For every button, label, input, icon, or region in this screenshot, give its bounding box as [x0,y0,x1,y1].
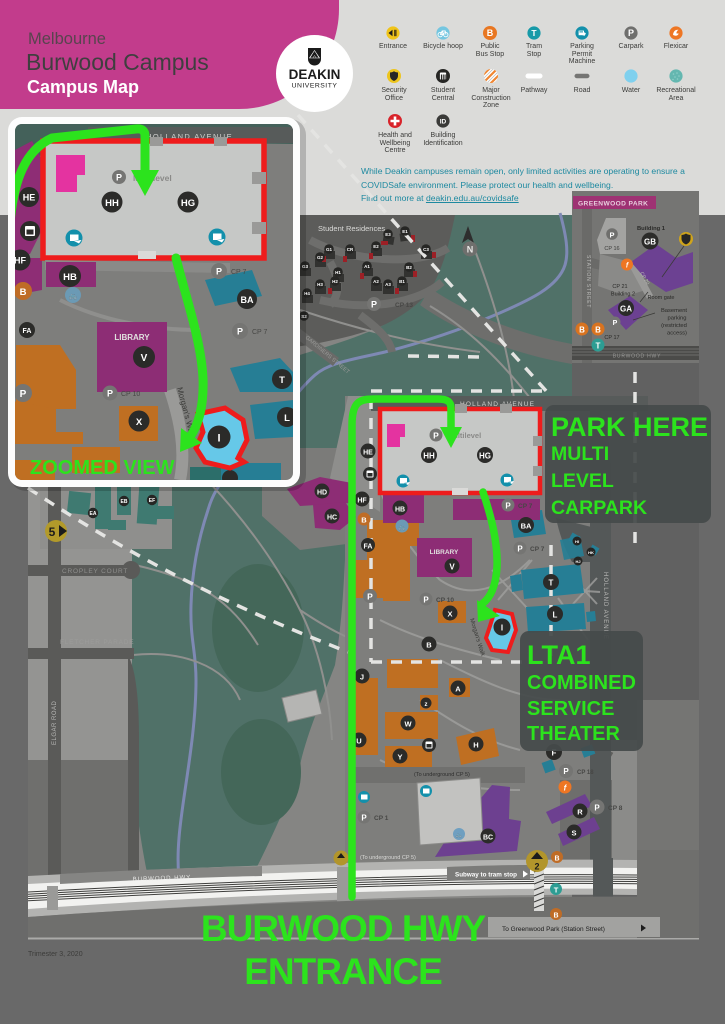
svg-text:H: H [473,741,478,750]
svg-text:HC: HC [327,515,337,522]
svg-text:P: P [237,327,243,337]
svg-text:P: P [371,300,377,310]
svg-text:ZOOMED VIEW: ZOOMED VIEW [30,457,175,479]
svg-text:HE: HE [23,193,36,203]
svg-text:BA: BA [241,295,254,305]
svg-text:SERVICE: SERVICE [527,698,614,720]
svg-text:W: W [404,720,412,729]
svg-text:access): access) [667,331,687,337]
svg-text:CR: CR [347,247,354,252]
svg-text:N: N [467,245,474,255]
svg-text:C3: C3 [423,247,429,252]
svg-text:CP 18: CP 18 [577,770,594,776]
svg-text:P: P [505,502,511,511]
svg-text:H3: H3 [317,282,323,287]
svg-text:HD: HD [317,490,327,497]
svg-text:P: P [20,389,27,400]
svg-text:L: L [553,611,558,620]
svg-text:CP 10: CP 10 [121,391,140,398]
svg-text:FLETCHER PARADE: FLETCHER PARADE [60,639,134,646]
svg-text:CP 7: CP 7 [231,269,247,276]
svg-text:P: P [433,431,439,441]
svg-text:E1: E1 [402,229,408,234]
svg-text:LIBRARY: LIBRARY [114,333,150,342]
svg-text:2: 2 [534,862,539,872]
svg-text:BA: BA [521,522,532,531]
svg-text:P: P [423,596,429,605]
svg-text:Student Residences: Student Residences [318,224,385,233]
svg-text:(restricted: (restricted [661,323,687,329]
svg-text:L: L [284,413,290,424]
svg-text:T: T [549,579,554,588]
svg-text:P: P [361,814,367,823]
svg-text:FA: FA [23,328,32,335]
svg-text:P: P [594,804,600,813]
svg-text:COMBINED: COMBINED [527,672,636,694]
svg-text:HE: HE [363,450,373,457]
svg-text:J: J [360,673,364,682]
svg-text:LEVEL: LEVEL [551,470,614,492]
svg-text:CP 7: CP 7 [530,546,545,553]
svg-text:T: T [596,342,601,351]
svg-text:BC: BC [483,835,493,842]
svg-text:A: A [455,685,461,694]
svg-text:P: P [367,592,373,602]
svg-text:MULTI: MULTI [551,443,609,465]
svg-text:HJ: HJ [575,559,580,564]
svg-text:parking: parking [667,316,686,322]
svg-text:BURWOOD HWY: BURWOOD HWY [613,354,661,360]
svg-text:I: I [217,433,220,445]
svg-text:V: V [449,563,455,572]
svg-text:HH: HH [105,198,119,209]
svg-text:HG: HG [181,198,195,209]
svg-text:S: S [571,829,576,838]
svg-text:FA: FA [364,544,373,551]
svg-text:R: R [577,808,583,817]
svg-text:B: B [20,287,27,298]
svg-text:(To underground CP 5): (To underground CP 5) [360,855,416,861]
svg-text:B2: B2 [406,265,412,270]
svg-text:CARPARK: CARPARK [551,497,647,519]
svg-text:T: T [554,886,559,895]
svg-text:B: B [361,516,367,525]
svg-text:CP 16: CP 16 [604,246,619,252]
svg-text:🚲: 🚲 [69,293,78,300]
svg-text:PARK HERE: PARK HERE [551,412,708,442]
svg-text:T: T [279,375,285,386]
svg-text:A3: A3 [385,282,391,287]
svg-text:P: P [563,767,569,776]
svg-text:STATION STREET: STATION STREET [585,255,591,308]
svg-text:CP 1: CP 1 [374,815,389,822]
svg-text:X: X [136,417,143,428]
svg-text:CP 7: CP 7 [252,329,268,336]
svg-text:E2: E2 [373,244,379,249]
svg-text:Y: Y [397,753,402,762]
svg-text:A1: A1 [364,264,370,269]
svg-text:ELGAR ROAD: ELGAR ROAD [52,700,58,745]
svg-text:HB: HB [395,507,405,514]
svg-text:z: z [425,702,428,708]
svg-text:LTA1: LTA1 [527,640,591,670]
svg-text:P: P [107,389,113,399]
svg-text:5: 5 [49,525,56,539]
svg-text:CP 13: CP 13 [395,302,413,309]
svg-text:P: P [216,267,222,277]
svg-text:CP 17: CP 17 [604,335,619,341]
svg-text:Subway to tram stop: Subway to tram stop [455,872,517,879]
svg-text:(To underground CP 5): (To underground CP 5) [414,772,470,778]
svg-text:H1: H1 [335,270,341,275]
svg-text:P: P [517,545,523,554]
svg-text:HI: HI [575,539,579,544]
svg-text:THEATER: THEATER [527,723,621,745]
svg-text:U: U [356,737,361,746]
svg-text:B: B [554,856,559,863]
svg-text:X: X [447,610,452,619]
svg-text:G2: G2 [317,255,324,260]
svg-text:ENTRANCE: ENTRANCE [244,951,442,992]
svg-text:GREENWOOD PARK: GREENWOOD PARK [578,201,648,208]
svg-text:B: B [595,326,601,335]
svg-text:A2: A2 [373,279,379,284]
svg-text:HG: HG [479,452,491,461]
svg-text:V: V [141,353,148,364]
svg-text:LIBRARY: LIBRARY [430,549,459,556]
svg-text:EB: EB [121,499,128,505]
svg-text:HB: HB [63,272,77,283]
svg-text:Building 1: Building 1 [637,226,666,232]
svg-text:B: B [426,641,432,650]
svg-text:H2: H2 [332,279,338,284]
svg-text:CROPLEY COURT: CROPLEY COURT [62,568,128,575]
svg-text:I: I [501,624,503,633]
svg-text:GA: GA [620,305,632,314]
svg-text:GB: GB [644,238,656,247]
svg-text:HF: HF [14,256,26,266]
svg-text:Building 2: Building 2 [611,292,635,298]
svg-text:B: B [553,913,558,920]
svg-text:CP 10: CP 10 [436,597,454,604]
svg-text:EF: EF [149,498,155,504]
svg-text:BURWOOD HWY: BURWOOD HWY [201,908,487,949]
svg-text:P: P [116,173,122,183]
svg-text:Room gate: Room gate [648,295,675,301]
svg-text:G1: G1 [326,247,333,252]
svg-text:HH: HH [423,452,435,461]
svg-text:B1: B1 [399,279,405,284]
svg-text:CP 8: CP 8 [608,805,623,812]
svg-text:HF: HF [357,498,367,505]
svg-text:HK: HK [588,550,594,555]
svg-text:B: B [579,326,585,335]
svg-text:CP 21: CP 21 [612,284,627,290]
svg-text:🚲: 🚲 [456,833,462,839]
svg-text:P: P [609,231,614,240]
svg-text:P: P [613,320,618,327]
svg-text:E3: E3 [385,232,391,237]
svg-text:Basement: Basement [661,308,687,314]
svg-text:CP 7: CP 7 [518,503,533,510]
svg-text:To Greenwood Park (Station Str: To Greenwood Park (Station Street) [502,926,605,933]
svg-text:Trimester 3, 2020: Trimester 3, 2020 [28,951,83,958]
svg-text:EA: EA [90,511,97,517]
svg-text:HOLLAND AVENUE: HOLLAND AVENUE [602,572,608,640]
svg-text:🚲: 🚲 [398,525,406,531]
